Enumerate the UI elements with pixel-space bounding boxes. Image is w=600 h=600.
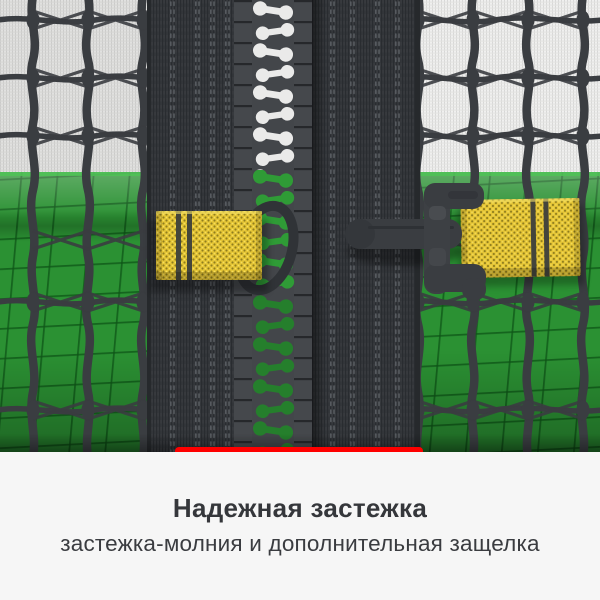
zipper-photo [0,0,600,452]
caption-subtitle: застежка-молния и дополнительная защелка [0,530,600,557]
yellow-strap-left [150,211,268,292]
caption-title: Надежная застежка [0,494,600,524]
caption: Надежная застежка застежка-молния и допо… [0,452,600,600]
red-underline [175,447,423,452]
product-card: Надежная застежка застежка-молния и допо… [0,0,600,600]
